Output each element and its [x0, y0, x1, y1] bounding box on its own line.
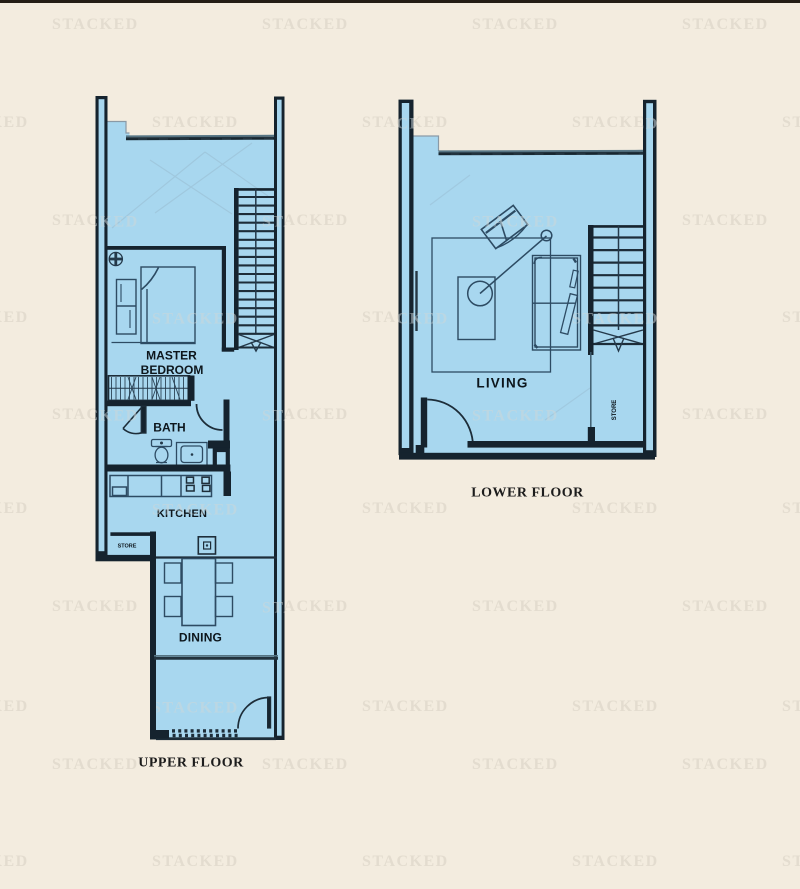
- svg-text:UPPER FLOOR: UPPER FLOOR: [138, 756, 244, 771]
- svg-text:STACKED: STACKED: [152, 311, 239, 328]
- svg-text:STACKED: STACKED: [472, 408, 559, 425]
- svg-text:STACKED: STACKED: [262, 408, 349, 425]
- svg-text:BEDROOM: BEDROOM: [141, 363, 204, 377]
- svg-text:STORE: STORE: [118, 544, 137, 550]
- svg-text:STACKED: STACKED: [152, 700, 239, 717]
- svg-text:BATH: BATH: [153, 421, 185, 435]
- svg-text:STORE: STORE: [612, 400, 618, 421]
- svg-text:DINING: DINING: [179, 631, 222, 645]
- svg-text:STACKED: STACKED: [362, 116, 449, 133]
- svg-text:STACKED: STACKED: [52, 408, 139, 425]
- svg-text:STACKED: STACKED: [152, 502, 239, 519]
- svg-text:STACKED: STACKED: [472, 214, 559, 231]
- svg-text:LIVING: LIVING: [476, 376, 528, 391]
- svg-text:STACKED: STACKED: [52, 214, 139, 231]
- svg-text:STACKED: STACKED: [362, 311, 449, 328]
- svg-text:STACKED: STACKED: [262, 214, 349, 231]
- svg-text:STACKED: STACKED: [572, 311, 659, 328]
- svg-text:LOWER FLOOR: LOWER FLOOR: [471, 486, 584, 501]
- svg-text:STACKED: STACKED: [262, 600, 349, 617]
- svg-text:MASTER: MASTER: [146, 349, 197, 363]
- svg-text:STACKED: STACKED: [572, 116, 659, 133]
